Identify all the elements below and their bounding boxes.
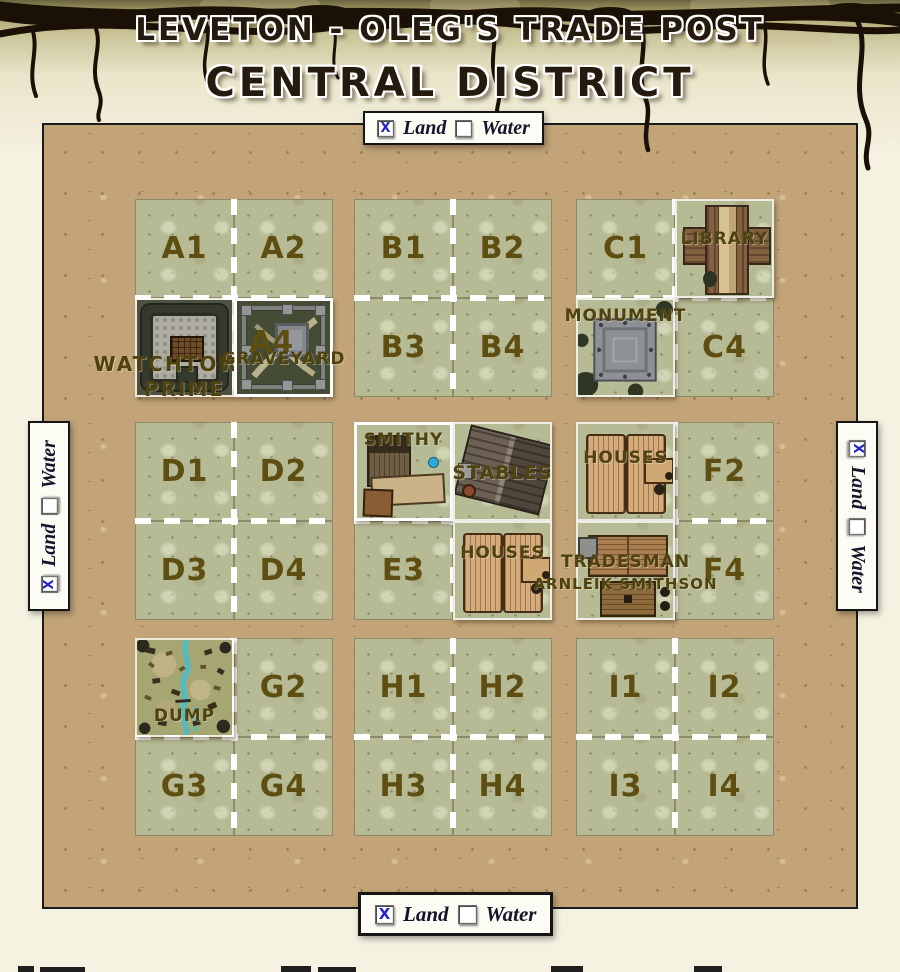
checkbox-x-glyph: X — [379, 905, 391, 923]
tile-I3[interactable]: I3 — [576, 737, 675, 836]
block-H-vertical-divider — [450, 638, 456, 836]
tile-B3[interactable]: B3 — [354, 298, 453, 397]
tile-watchtower-prime[interactable]: WATCHTOWER PRIME — [135, 298, 234, 397]
land-label: Land — [403, 117, 446, 140]
tile-label: I2 — [675, 638, 774, 737]
checkbox-unchecked[interactable] — [458, 905, 477, 924]
tile-F2[interactable]: F2 — [675, 422, 774, 521]
building-caption: MONUMENT — [565, 306, 687, 326]
block-B: B1 B2 B3 B4 — [354, 199, 552, 397]
water-label: Water — [481, 117, 530, 140]
checkbox-x-glyph: X — [850, 443, 865, 453]
tile-label: I1 — [576, 638, 675, 737]
tile-label: B1 — [354, 199, 453, 298]
checkbox-unchecked[interactable] — [849, 518, 866, 535]
building-caption: GRAVEYARD — [222, 349, 346, 369]
checkbox-unchecked[interactable] — [455, 120, 472, 137]
tile-H1[interactable]: H1 — [354, 638, 453, 737]
district-map: A1 A2 WATCHTOWER PRIME — [42, 123, 858, 909]
block-H: H1 H2 H3 H4 — [354, 638, 552, 836]
tile-H2[interactable]: H2 — [453, 638, 552, 737]
tile-H4[interactable]: H4 — [453, 737, 552, 836]
building-caption: LIBRARY — [681, 229, 769, 249]
building-caption: PRIME — [144, 377, 225, 401]
footer-cutoff-text — [318, 967, 356, 972]
checkbox-x-glyph: X — [380, 121, 390, 136]
block-D: D1 D2 D3 D4 — [135, 422, 333, 620]
tile-I2[interactable]: I2 — [675, 638, 774, 737]
trade-post-map-page: LEVETON - OLEG'S TRADE POST CENTRAL DIST… — [0, 0, 900, 972]
tile-label: A1 — [135, 199, 234, 298]
checkbox-x-glyph: X — [42, 579, 57, 589]
block-G: DUMP G2 G3 G4 — [135, 638, 333, 836]
tile-dump[interactable]: DUMP — [135, 638, 234, 737]
footer-cutoff-text — [694, 966, 722, 972]
block-I: I1 I2 I3 I4 — [576, 638, 774, 836]
houses-image — [455, 523, 550, 618]
tile-label: I4 — [675, 737, 774, 836]
tile-label: G2 — [234, 638, 333, 737]
building-caption: SMITHY — [364, 430, 444, 450]
building-caption: HOUSES — [460, 543, 545, 563]
tile-label: F2 — [675, 422, 774, 521]
tile-label: H4 — [453, 737, 552, 836]
tile-A1[interactable]: A1 — [135, 199, 234, 298]
block-I-vertical-divider — [672, 638, 678, 836]
tile-houses-e4[interactable]: HOUSES — [453, 521, 552, 620]
water-label: Water — [38, 440, 61, 489]
checkbox-checked-x[interactable]: X — [377, 120, 394, 137]
page-title: LEVETON - OLEG'S TRADE POST — [0, 12, 900, 48]
tile-G3[interactable]: G3 — [135, 737, 234, 836]
tile-D4[interactable]: D4 — [234, 521, 333, 620]
block-C: C1 LIBRARY — [576, 199, 774, 397]
tile-label: I3 — [576, 737, 675, 836]
checkbox-unchecked[interactable] — [41, 497, 58, 514]
tile-D1[interactable]: D1 — [135, 422, 234, 521]
building-caption: HOUSES — [583, 448, 668, 468]
terrain-toggle-right: X Land Water — [836, 421, 878, 611]
tile-label: B4 — [453, 298, 552, 397]
tile-H3[interactable]: H3 — [354, 737, 453, 836]
tile-smithy[interactable]: SMITHY — [354, 422, 453, 521]
tile-B2[interactable]: B2 — [453, 199, 552, 298]
checkbox-checked-x[interactable]: X — [849, 440, 866, 457]
tile-label: D1 — [135, 422, 234, 521]
checkbox-checked-x[interactable]: X — [375, 905, 394, 924]
block-B-vertical-divider — [450, 199, 456, 397]
land-label: Land — [846, 466, 869, 509]
tile-monument[interactable]: MONUMENT — [576, 298, 675, 397]
terrain-toggle-top: X Land Water — [363, 111, 544, 145]
tile-A2[interactable]: A2 — [234, 199, 333, 298]
tile-G4[interactable]: G4 — [234, 737, 333, 836]
tile-label: D4 — [234, 521, 333, 620]
building-caption: TRADESMAN — [561, 552, 690, 572]
tile-label: B3 — [354, 298, 453, 397]
tile-graveyard[interactable]: A4 GRAVEYARD — [234, 298, 333, 397]
tile-D2[interactable]: D2 — [234, 422, 333, 521]
tile-E3[interactable]: E3 — [354, 521, 453, 620]
houses-image — [578, 424, 673, 519]
water-label: Water — [846, 544, 869, 593]
tile-label: B2 — [453, 199, 552, 298]
tile-tradesman-arnleik-smithson[interactable]: TRADESMAN ARNLEIK SMITHSON — [576, 521, 675, 620]
tile-label: H1 — [354, 638, 453, 737]
footer-cutoff-text — [40, 967, 85, 972]
tile-D3[interactable]: D3 — [135, 521, 234, 620]
terrain-toggle-left: X Land Water — [28, 421, 70, 611]
tile-label: G3 — [135, 737, 234, 836]
tile-B4[interactable]: B4 — [453, 298, 552, 397]
tile-C1[interactable]: C1 — [576, 199, 675, 298]
page-subtitle: CENTRAL DISTRICT — [0, 60, 900, 106]
tile-stables[interactable]: STABLES — [453, 422, 552, 521]
tile-C4[interactable]: C4 — [675, 298, 774, 397]
land-label: Land — [403, 902, 449, 927]
block-A: A1 A2 WATCHTOWER PRIME — [135, 199, 333, 397]
footer-cutoff-text — [551, 966, 583, 972]
building-caption: STABLES — [452, 462, 552, 484]
footer-cutoff-text — [18, 966, 34, 972]
tile-I4[interactable]: I4 — [675, 737, 774, 836]
building-caption: DUMP — [154, 706, 215, 726]
tile-label: C1 — [576, 199, 675, 298]
block-D-vertical-divider — [231, 422, 237, 620]
tile-label: G4 — [234, 737, 333, 836]
building-caption: ARNLEIK SMITHSON — [533, 575, 717, 593]
block-E: SMITHY STABLES E3 HOUSES — [354, 422, 552, 620]
checkbox-checked-x[interactable]: X — [41, 575, 58, 592]
tile-label: H2 — [453, 638, 552, 737]
tile-label: E3 — [354, 521, 453, 620]
tile-label: C4 — [675, 298, 774, 397]
tile-houses-f1[interactable]: HOUSES — [576, 422, 675, 521]
tile-library[interactable]: LIBRARY — [675, 199, 774, 298]
tile-B1[interactable]: B1 — [354, 199, 453, 298]
land-label: Land — [38, 523, 61, 566]
tile-label: D3 — [135, 521, 234, 620]
tile-label: D2 — [234, 422, 333, 521]
footer-cutoff-text — [281, 966, 311, 972]
water-label: Water — [486, 902, 537, 927]
tile-G2[interactable]: G2 — [234, 638, 333, 737]
tile-label: H3 — [354, 737, 453, 836]
tile-label: A2 — [234, 199, 333, 298]
terrain-toggle-bottom: X Land Water — [358, 892, 553, 936]
tile-I1[interactable]: I1 — [576, 638, 675, 737]
block-F: HOUSES F2 TRADESMAN ARNLEIK SMITHSON F4 — [576, 422, 774, 620]
